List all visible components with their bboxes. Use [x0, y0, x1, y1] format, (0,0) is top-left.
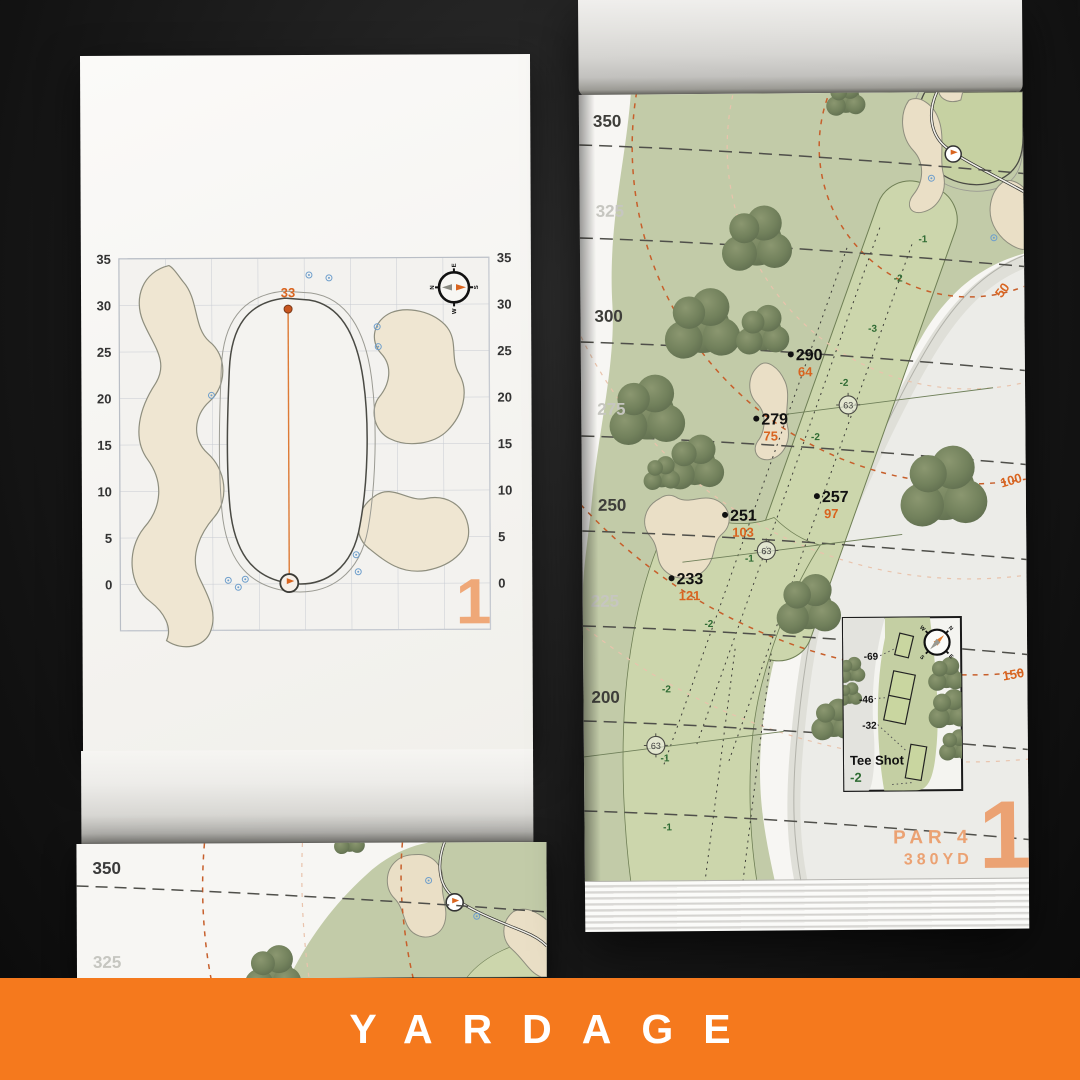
distance-label: 275 — [597, 400, 626, 419]
carry-distance: 233 — [676, 571, 703, 588]
pin-dot — [284, 305, 292, 313]
axis-label: 5 — [498, 529, 505, 544]
hole-number: 1 — [978, 781, 1029, 883]
axis-label: 25 — [497, 343, 512, 358]
axis-label: 15 — [97, 438, 112, 453]
elevation-label: -1 — [745, 554, 754, 565]
green-outline — [219, 291, 376, 593]
axis-label: 35 — [497, 250, 512, 265]
elevation-label: -1 — [918, 234, 927, 245]
hole-map-book: 63 63 63 — [578, 0, 1029, 931]
par-label: PAR 4 — [893, 827, 973, 849]
carry-distance: 279 — [761, 411, 788, 428]
tee-distance: -46 — [859, 695, 874, 706]
axis-label: 0 — [105, 577, 112, 592]
green-detail-page: 35 30 25 20 15 10 5 0 35 30 25 20 15 10 … — [80, 54, 533, 753]
remaining-distance: 121 — [679, 588, 701, 603]
next-page-preview: 350 325 — [76, 842, 547, 979]
distance-label: 200 — [591, 688, 620, 707]
yardage-book-mockup: { "banner": { "label": "YARDAGE", "backg… — [0, 0, 1080, 1080]
distance-label: 350 — [593, 112, 622, 131]
axis-label: 20 — [97, 391, 112, 406]
distance-label: 250 — [598, 496, 627, 515]
hole-map-top-preview: 350 325 — [76, 842, 547, 979]
elevation-label: -1 — [663, 822, 672, 833]
flag-marker — [280, 574, 298, 592]
distance-label: 350 — [92, 859, 120, 878]
distance-label: 300 — [594, 307, 623, 326]
remaining-distance: 103 — [732, 525, 754, 540]
banner-title: YARDAGE — [319, 1006, 760, 1053]
elevation-label: -2 — [840, 378, 849, 389]
remaining-distance: 75 — [763, 428, 778, 443]
compass-w: W — [452, 308, 458, 314]
axis-label: 20 — [497, 390, 512, 405]
green-detail-book: 35 30 25 20 15 10 5 0 35 30 25 20 15 10 … — [78, 54, 534, 979]
compass-n: N — [430, 285, 436, 289]
tree — [245, 945, 301, 979]
elevation-label: -1 — [660, 753, 669, 764]
pin-circle-label: 63 — [843, 400, 853, 410]
pin-distance-label: 33 — [281, 285, 296, 300]
green-detail-map: 35 30 25 20 15 10 5 0 35 30 25 20 15 10 … — [80, 54, 533, 751]
elevation-label: -2 — [811, 432, 820, 443]
distance-label: 325 — [93, 953, 121, 972]
compass-e: E — [452, 263, 458, 267]
pin-circle-label: 63 — [651, 741, 661, 751]
axis-label: 30 — [97, 298, 112, 313]
carry-distance: 290 — [796, 347, 823, 364]
remaining-distance: 64 — [798, 364, 813, 379]
tee-shot-elevation: -2 — [850, 770, 862, 785]
tee-distance: -69 — [864, 652, 879, 663]
hole-distance-label: 380YD — [904, 851, 973, 869]
hole-number: 1 — [456, 565, 492, 637]
axis-label: 5 — [105, 531, 112, 546]
hole-map-page: 63 63 63 — [579, 92, 1029, 883]
axis-label: 10 — [97, 484, 112, 499]
tree — [334, 842, 365, 854]
axis-label: 10 — [498, 483, 513, 498]
remaining-distance: 97 — [824, 506, 839, 521]
distance-label: 225 — [591, 592, 620, 611]
page-stack-edges[interactable] — [585, 877, 1029, 931]
pin-circle-label: 63 — [761, 546, 771, 556]
flag-marker — [446, 894, 463, 911]
elevation-label: -2 — [662, 684, 671, 695]
carry-distance: 251 — [730, 508, 757, 525]
flag-marker — [945, 146, 961, 162]
hole-map: 63 63 63 — [579, 92, 1029, 883]
elevation-label: -3 — [868, 324, 877, 335]
axis-label: 15 — [498, 436, 513, 451]
distance-label: 325 — [596, 202, 625, 221]
elevation-label: -2 — [704, 619, 713, 630]
tee-shot-inset: -69 -46 -32 Tee Shot -2 N — [836, 610, 973, 791]
axis-label: 25 — [97, 345, 112, 360]
tee-distance: -32 — [862, 721, 877, 732]
page-fold[interactable] — [578, 0, 1023, 97]
axis-label: 0 — [498, 576, 505, 591]
carry-distance: 257 — [822, 489, 849, 506]
yardage-banner: YARDAGE — [0, 978, 1080, 1080]
page-fold[interactable] — [81, 749, 533, 845]
axis-label: 35 — [96, 252, 111, 267]
elevation-label: -2 — [894, 273, 903, 284]
tee-shot-title: Tee Shot — [850, 752, 905, 767]
compass-s: S — [474, 285, 480, 289]
axis-label: 30 — [497, 297, 512, 312]
